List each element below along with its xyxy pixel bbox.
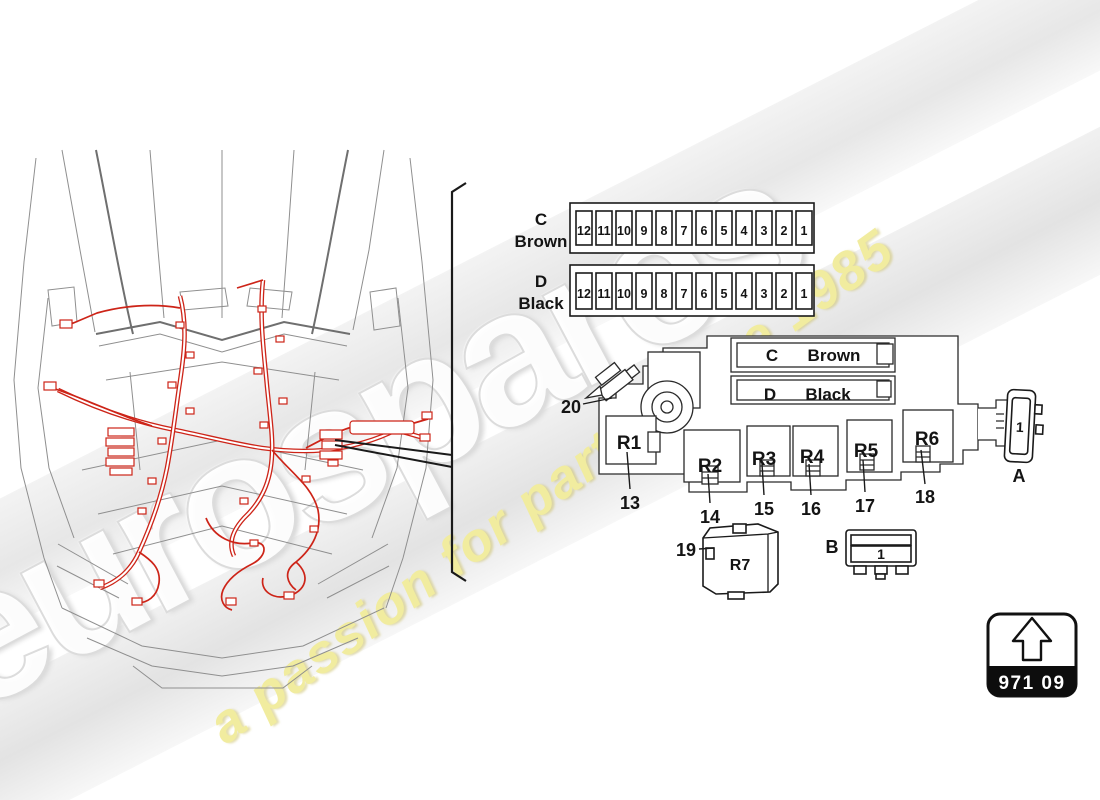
fuse-cell: 1 bbox=[801, 287, 808, 301]
parts-diagram-page: eurospares a passion for parts since 198… bbox=[0, 0, 1100, 800]
callout-14: 14 bbox=[700, 507, 720, 527]
relay-label-r5: R5 bbox=[854, 441, 879, 462]
fuse-cell: 8 bbox=[661, 224, 668, 238]
relay-carrier: C Brown D Black R1 R2 R3 R4 R5 R6 13 14 … bbox=[561, 336, 1008, 527]
relay-label-r7: R7 bbox=[730, 557, 751, 574]
fuse-cell: 11 bbox=[597, 287, 610, 301]
callout-20: 20 bbox=[561, 397, 581, 417]
fuse-row-c-letter: C bbox=[535, 210, 547, 229]
fuse-cell: 4 bbox=[741, 224, 748, 238]
fuse-cell: 8 bbox=[661, 287, 668, 301]
fuse-cell: 3 bbox=[761, 224, 768, 238]
fuse-cell: 10 bbox=[617, 224, 631, 238]
connector-b: B 1 bbox=[826, 530, 917, 579]
fuse-cell: 10 bbox=[617, 287, 631, 301]
car-body-outline bbox=[14, 150, 433, 688]
fuse-cell: 2 bbox=[781, 224, 788, 238]
fuse-row-d-letter: D bbox=[535, 272, 547, 291]
connector-a-slot: 1 bbox=[1016, 419, 1025, 435]
relay-r7: R7 19 bbox=[676, 524, 778, 599]
fuse-cell: 6 bbox=[701, 287, 708, 301]
connector-a-label: A bbox=[1013, 466, 1026, 486]
fuse-cell: 9 bbox=[641, 287, 648, 301]
harness-connector-cluster-left bbox=[106, 428, 134, 475]
part-number-box: 971 09 bbox=[988, 614, 1076, 696]
fuse-cell: 6 bbox=[701, 224, 708, 238]
callout-13: 13 bbox=[620, 493, 640, 513]
fuse-row-c-color: Brown bbox=[515, 232, 568, 251]
fuse-cell: 7 bbox=[681, 287, 688, 301]
fuse-cell: 12 bbox=[577, 287, 591, 301]
fuse-cell: 1 bbox=[801, 224, 808, 238]
carrier-strip-d-color: Black bbox=[805, 385, 851, 404]
fuse-row-c: C Brown 12 11 10 9 8 7 6 5 4 3 2 1 bbox=[515, 203, 814, 253]
connector-b-label: B bbox=[826, 537, 839, 557]
fuse-cell: 5 bbox=[721, 224, 728, 238]
carrier-strip-c-color: Brown bbox=[808, 346, 861, 365]
fuse-cell: 4 bbox=[741, 287, 748, 301]
fuse-cell: 3 bbox=[761, 287, 768, 301]
fuse-cell: 5 bbox=[721, 287, 728, 301]
harness-connector-cluster-right bbox=[320, 430, 342, 466]
connector-a: 1 bbox=[1004, 389, 1045, 463]
callout-15: 15 bbox=[754, 499, 774, 519]
fuse-row-d-color: Black bbox=[518, 294, 564, 313]
relay-label-r1: R1 bbox=[617, 433, 642, 454]
fuse-cell: 7 bbox=[681, 224, 688, 238]
part-code: 971 09 bbox=[998, 673, 1065, 694]
fuse-cell: 11 bbox=[597, 224, 610, 238]
relay-label-r6: R6 bbox=[915, 429, 939, 450]
carrier-strip-d-letter: D bbox=[764, 385, 776, 404]
fuse-cell: 2 bbox=[781, 287, 788, 301]
section-bracket bbox=[452, 183, 466, 581]
fuse-cell: 12 bbox=[577, 224, 591, 238]
relay-label-r2: R2 bbox=[698, 456, 722, 477]
fuse-cell: 9 bbox=[641, 224, 648, 238]
callout-19: 19 bbox=[676, 540, 696, 560]
connector-b-slot: 1 bbox=[877, 546, 885, 562]
callout-16: 16 bbox=[801, 499, 821, 519]
harness-connectors bbox=[44, 306, 432, 605]
relay-label-r4: R4 bbox=[800, 447, 825, 468]
wiring-diagram-canvas: C Brown 12 11 10 9 8 7 6 5 4 3 2 1 D Bla… bbox=[0, 0, 1100, 800]
fuse-row-d: D Black 12 11 10 9 8 7 6 5 4 3 2 1 bbox=[518, 265, 814, 316]
callout-18: 18 bbox=[915, 487, 935, 507]
carrier-strip-c-letter: C bbox=[766, 346, 778, 365]
callout-17: 17 bbox=[855, 496, 875, 516]
harness-rail-connector bbox=[350, 421, 414, 434]
relay-label-r3: R3 bbox=[752, 449, 776, 470]
